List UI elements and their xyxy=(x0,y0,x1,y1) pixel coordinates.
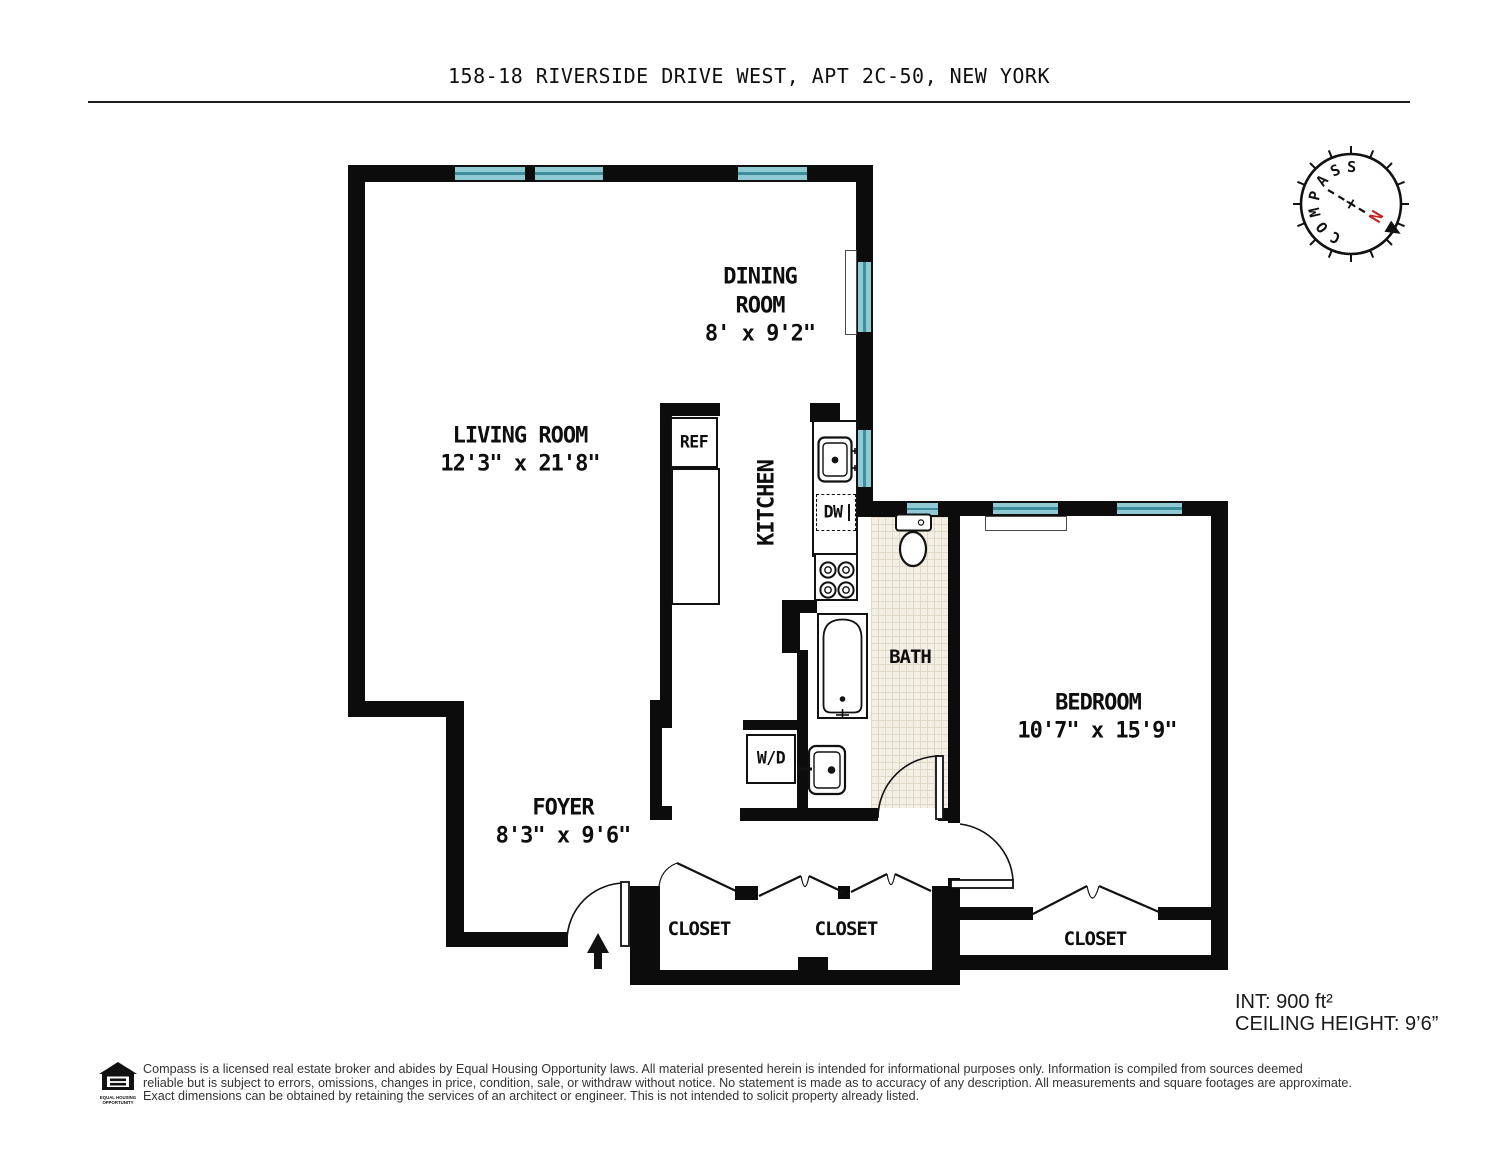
compass-tick xyxy=(1397,223,1404,226)
window-sill xyxy=(985,516,1067,531)
equal-housing-logo: EQUAL HOUSING OPPORTUNITY xyxy=(98,1062,138,1105)
compass-tick xyxy=(1310,239,1316,245)
foyer-label: FOYER xyxy=(532,794,593,822)
wall xyxy=(1158,907,1211,920)
wall xyxy=(798,957,828,971)
bathtub-box xyxy=(817,613,868,719)
equal-housing-text2: OPPORTUNITY xyxy=(98,1101,138,1106)
wall xyxy=(446,932,568,947)
compass-letter: S xyxy=(1328,160,1344,180)
compass-tick xyxy=(1297,182,1304,185)
bath-label: BATH xyxy=(889,646,931,670)
compass-tick xyxy=(1329,150,1332,157)
foyer-dims: 8'3" x 9'6" xyxy=(496,822,631,850)
compass-tick xyxy=(1386,163,1392,169)
compass-arrow-icon xyxy=(1385,221,1401,234)
equal-housing-house-icon xyxy=(99,1062,137,1092)
wall xyxy=(782,600,800,653)
window xyxy=(1117,501,1182,516)
compass-letter: P xyxy=(1305,189,1325,202)
wd-label: W/D xyxy=(757,749,785,770)
bedroom-dims: 10'7" x 15'9" xyxy=(1017,717,1176,745)
compass-tick xyxy=(1386,239,1392,245)
wall xyxy=(797,650,808,730)
compass-icon: N COMPASS xyxy=(1293,146,1409,262)
wall xyxy=(948,501,1228,516)
window xyxy=(455,165,525,182)
window xyxy=(907,501,938,517)
wall xyxy=(838,886,850,899)
dining-room-label: DINING xyxy=(723,263,796,291)
dishwasher-handle xyxy=(848,504,850,521)
ref-label: REF xyxy=(680,433,708,454)
window xyxy=(993,501,1058,516)
disclaimer-line3: Exact dimensions can be obtained by reta… xyxy=(143,1090,1423,1104)
compass-letter: O xyxy=(1312,218,1332,236)
compass-tick xyxy=(1310,163,1316,169)
wall xyxy=(948,516,960,823)
closet1-label: CLOSET xyxy=(668,918,731,942)
disclaimer-line1: Compass is a licensed real estate broker… xyxy=(143,1063,1423,1077)
living-room-dims: 12'3" x 21'8" xyxy=(440,450,599,478)
wall xyxy=(446,701,464,947)
title-divider xyxy=(88,101,1410,103)
bedroom-door xyxy=(951,824,1013,888)
wall xyxy=(948,907,1033,920)
window xyxy=(738,165,807,182)
wall xyxy=(632,970,960,985)
wall xyxy=(743,720,797,730)
dw-label: DW xyxy=(824,503,843,524)
wall xyxy=(740,808,878,821)
wall xyxy=(948,955,1227,970)
kitchen-counter xyxy=(671,468,720,605)
compass-letter: M xyxy=(1305,206,1325,219)
interior-area: INT: 900 ft² xyxy=(1235,992,1438,1014)
compass-tick xyxy=(1297,223,1304,226)
wall xyxy=(1211,501,1228,970)
window xyxy=(856,262,873,332)
closet2-label: CLOSET xyxy=(815,918,878,942)
compass-tick xyxy=(1397,182,1404,185)
entry-arrow-icon xyxy=(587,933,609,953)
compass-north-label: N xyxy=(1366,207,1388,226)
wall xyxy=(797,720,808,813)
compass-tick xyxy=(1329,250,1332,257)
kitchen-label: KITCHEN xyxy=(753,460,781,546)
page-title: 158-18 RIVERSIDE DRIVE WEST, APT 2C-50, … xyxy=(448,64,1050,88)
window xyxy=(856,430,873,487)
window xyxy=(535,165,603,182)
wall xyxy=(650,700,672,728)
disclaimer: Compass is a licensed real estate broker… xyxy=(143,1063,1423,1104)
closet3-label: CLOSET xyxy=(1064,928,1127,952)
bedroom-label: BEDROOM xyxy=(1055,689,1141,717)
compass-letter: A xyxy=(1312,172,1332,190)
compass-letter: C xyxy=(1328,227,1344,247)
window-sill xyxy=(845,250,857,335)
floorplan-sheet: 158-18 RIVERSIDE DRIVE WEST, APT 2C-50, … xyxy=(0,0,1500,1160)
entry-door xyxy=(567,882,629,969)
wall xyxy=(650,728,662,810)
wall xyxy=(735,886,758,900)
compass-tick xyxy=(1370,150,1373,157)
disclaimer-line2: reliable but is subject to errors, omiss… xyxy=(143,1077,1423,1091)
wall xyxy=(348,701,461,717)
ceiling-height: CEILING HEIGHT: 9’6” xyxy=(1235,1014,1438,1036)
dining-room-label2: ROOM xyxy=(736,292,785,320)
closet3-doors xyxy=(1033,886,1159,914)
compass-letter: S xyxy=(1347,158,1356,176)
stove-box xyxy=(814,553,858,601)
wall xyxy=(348,165,365,717)
wall xyxy=(650,806,672,820)
closet1-door xyxy=(659,863,736,895)
unit-info: INT: 900 ft² CEILING HEIGHT: 9’6” xyxy=(1235,992,1438,1035)
compass-tick xyxy=(1370,250,1373,257)
sink-counter xyxy=(812,420,858,557)
living-room-label: LIVING ROOM xyxy=(453,422,588,450)
dining-room-dims: 8' x 9'2" xyxy=(705,320,815,348)
